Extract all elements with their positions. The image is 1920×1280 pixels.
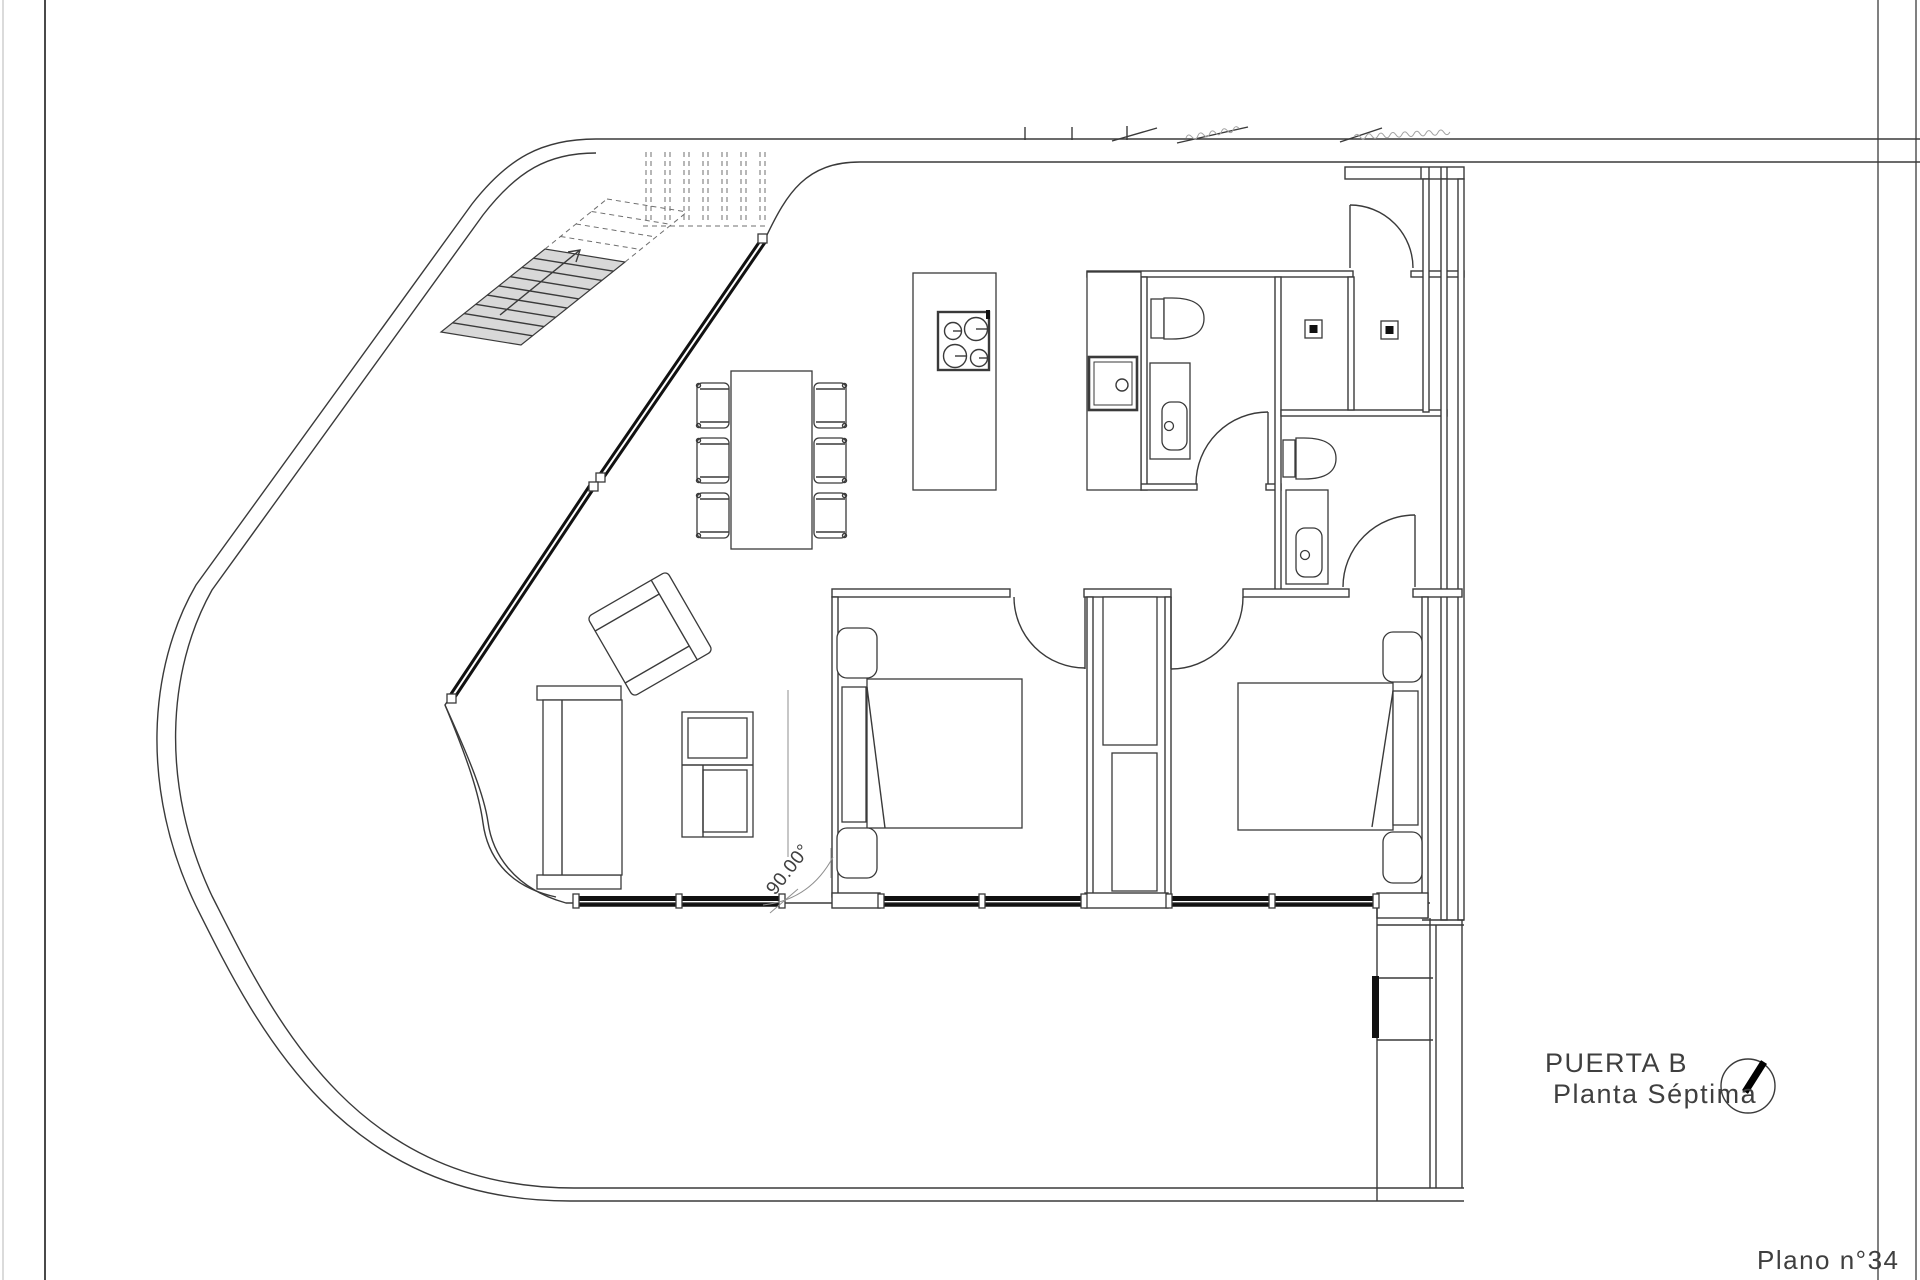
floor-plan-sheet: 90.00° PUERTA B Planta Séptima Plano n°3… (0, 0, 1920, 1280)
shower-drain-2 (1381, 321, 1398, 339)
floor-label: Planta Séptima (1553, 1079, 1757, 1109)
bedroom-2-door (1171, 597, 1243, 669)
shower-drain-1 (1305, 320, 1322, 338)
living-window (573, 894, 785, 908)
kitchen-counter (1087, 272, 1141, 490)
toilet-room-door (1343, 515, 1415, 587)
toilet-2 (1283, 438, 1336, 479)
angle-label: 90.00° (762, 840, 814, 899)
bed-2 (1238, 683, 1418, 830)
angle-dimension: 90.00° (762, 690, 833, 913)
floor-plan-drawing: 90.00° PUERTA B Planta Séptima Plano n°3… (0, 0, 1920, 1280)
bedroom-1-window (878, 894, 1087, 908)
vanity-1 (1150, 363, 1190, 459)
nightstand (837, 628, 877, 678)
bathroom-1 (1150, 298, 1204, 459)
bedroom-1 (837, 628, 1022, 878)
living-room (537, 571, 753, 889)
vanity-2 (1286, 490, 1328, 584)
dining-area (697, 371, 847, 549)
toilet-room-2 (1283, 438, 1336, 584)
terrace-boundary (157, 126, 1920, 1201)
bedroom-2-window (1166, 894, 1379, 908)
entry-door (1350, 205, 1413, 268)
tv-unit (682, 712, 753, 837)
nightstand (1383, 832, 1422, 883)
nightstand (1383, 632, 1422, 682)
bed-1 (842, 679, 1022, 828)
wardrobes (1103, 597, 1157, 891)
dining-table (731, 371, 812, 549)
door-label: PUERTA B (1545, 1048, 1688, 1078)
kitchen-sink (1089, 357, 1137, 410)
armchair (587, 571, 713, 697)
pergola-louvres (643, 152, 768, 226)
plan-number: Plano n°34 (1757, 1245, 1900, 1275)
window-bands (573, 894, 1379, 908)
nightstand (837, 828, 877, 878)
sofa (537, 686, 622, 889)
kitchen-island (913, 273, 996, 490)
kitchen (913, 272, 1141, 490)
toilet-1 (1151, 298, 1204, 339)
corner-glazing-strip (1372, 976, 1379, 1038)
bedroom-1-door (1014, 597, 1085, 669)
terrace-southeast (1372, 908, 1464, 1201)
bathroom-door (1196, 412, 1268, 484)
bedroom-2 (1238, 632, 1422, 883)
